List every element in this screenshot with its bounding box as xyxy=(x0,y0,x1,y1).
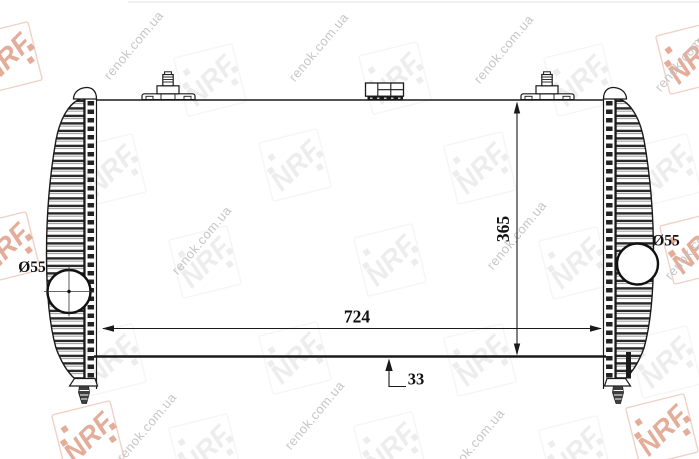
left-foot-flange xyxy=(70,379,98,387)
intercooler-drawing: 724 365 33 Ø55 Ø55 xyxy=(0,0,699,459)
right-pipe-diameter-label: Ø55 xyxy=(652,233,680,250)
arrow-left xyxy=(102,325,114,331)
right-tank-top-cap xyxy=(604,87,627,99)
left-side-tank xyxy=(44,87,98,403)
left-top-bracket xyxy=(142,72,195,100)
right-side-tank xyxy=(604,87,659,403)
dimension-width-724: 724 xyxy=(102,307,602,332)
right-foot-flange xyxy=(605,379,631,387)
left-tank-top-cap xyxy=(74,87,97,99)
left-pipe-center-mark xyxy=(67,290,70,293)
arrow-right xyxy=(590,325,602,331)
radiator-technical-drawing-page: NRF xyxy=(0,0,699,459)
right-tank-fins xyxy=(616,98,654,379)
dimension-height-365: 365 xyxy=(493,102,520,356)
filler-neck xyxy=(366,83,404,100)
right-foot-channel xyxy=(626,352,631,379)
right-pipe-port xyxy=(617,244,658,285)
left-tank-fins xyxy=(47,98,85,379)
arrow-up xyxy=(514,102,520,114)
height-dimension-label: 365 xyxy=(493,216,513,243)
depth-dimension-label: 33 xyxy=(408,370,425,389)
arrow-down xyxy=(514,344,520,356)
left-pipe-diameter-label: Ø55 xyxy=(18,259,46,276)
arrow-up xyxy=(385,359,392,372)
width-dimension-label: 724 xyxy=(344,307,371,327)
dimension-depth-33: 33 xyxy=(385,359,424,389)
right-top-bracket xyxy=(521,72,574,100)
